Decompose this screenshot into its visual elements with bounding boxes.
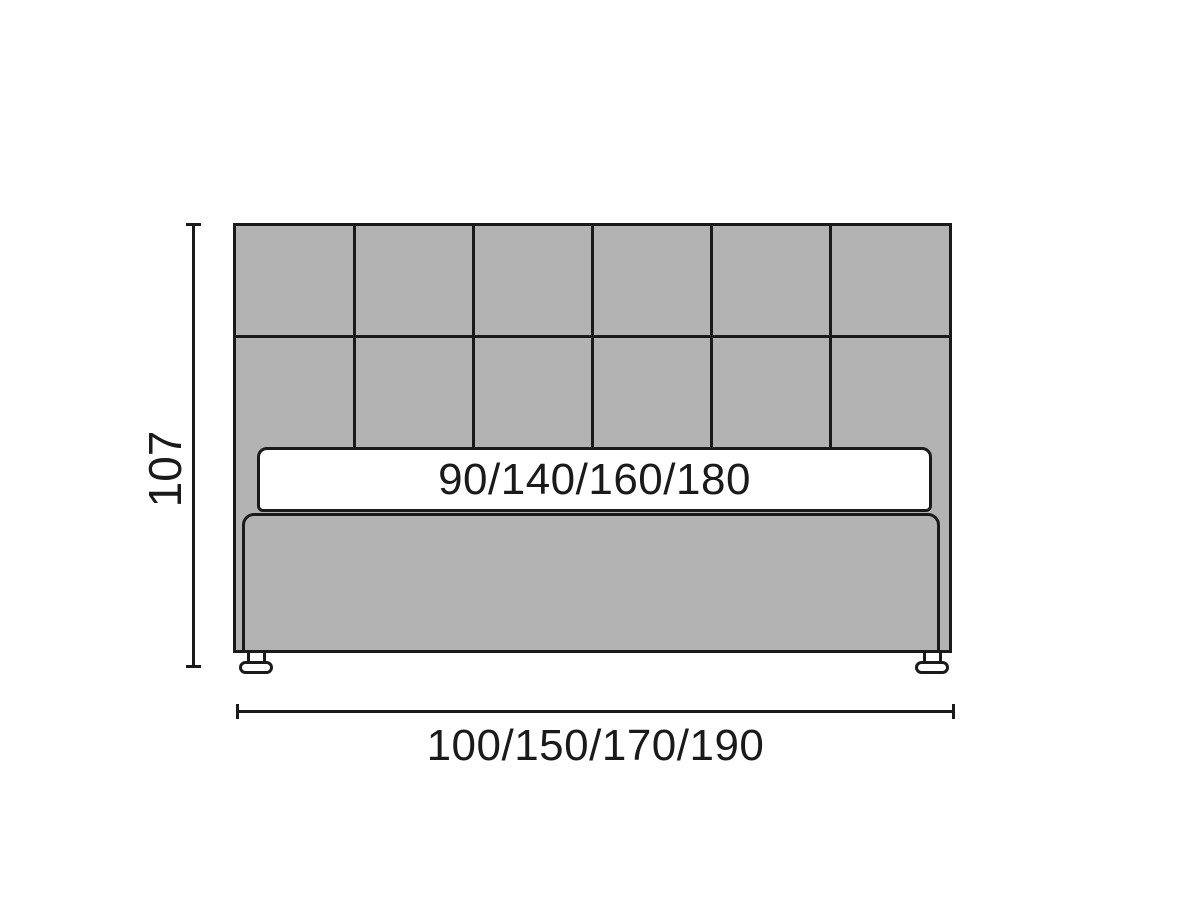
bed-base [242, 513, 940, 653]
bed-foot-right-cap [915, 661, 949, 674]
width-dimension-tick-right [952, 704, 955, 719]
overall-widths-label: 100/150/170/190 [236, 722, 955, 770]
height-dimension-label: 107 [142, 369, 188, 569]
headboard-divider-horizontal [236, 335, 949, 338]
height-dimension-tick-bottom [186, 665, 201, 668]
mattress-widths-label: 90/140/160/180 [438, 458, 751, 502]
diagram-canvas: 107 90/140/160/180 100/150/170/190 [0, 0, 1200, 900]
mattress: 90/140/160/180 [257, 447, 932, 512]
height-dimension-tick-top [186, 223, 201, 226]
height-dimension-line [192, 223, 195, 668]
bed-foot-left-cap [239, 661, 273, 674]
width-dimension-tick-left [236, 704, 239, 719]
width-dimension-line [236, 710, 955, 713]
